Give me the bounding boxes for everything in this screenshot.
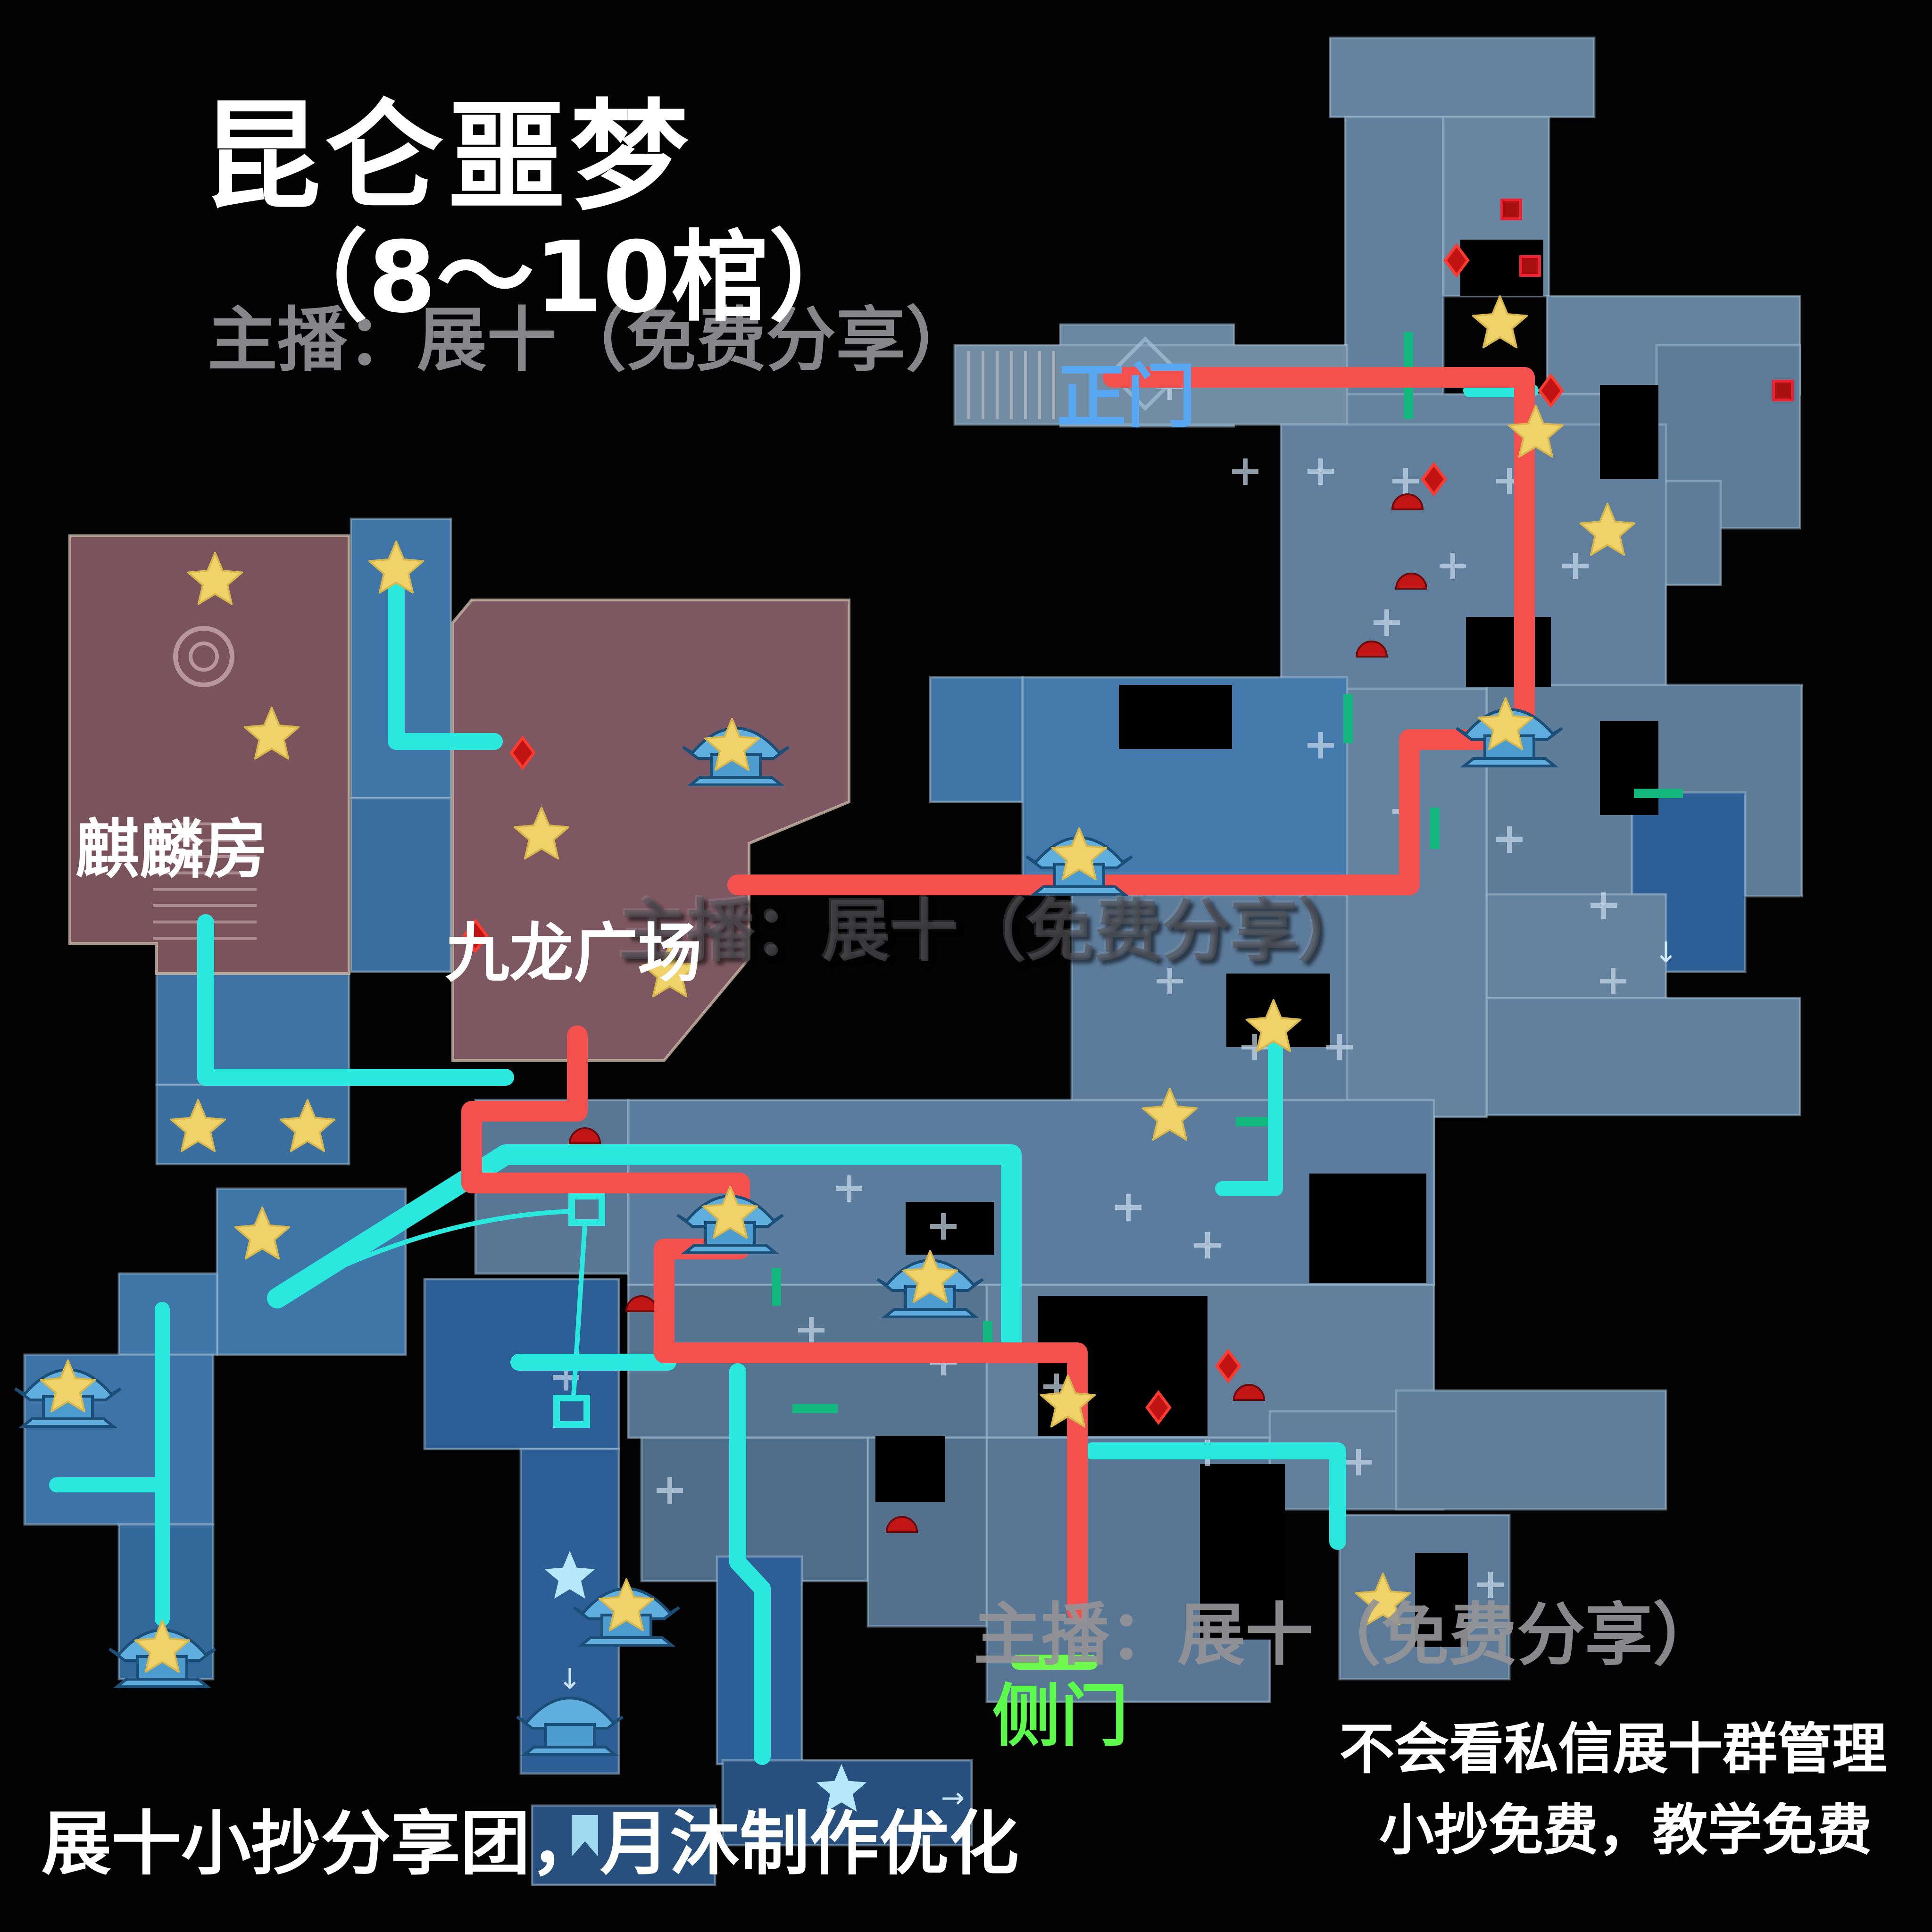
red-square-marker: [1502, 200, 1521, 219]
room: [1396, 1391, 1666, 1509]
pagoda-base: [685, 1245, 775, 1253]
unexplored-hole: [1309, 1174, 1426, 1283]
room: [1487, 998, 1800, 1115]
footer-notice-2: 小抄免费，教学免费: [1379, 1804, 1872, 1858]
unexplored-hole: [1466, 617, 1551, 687]
unexplored-hole: [1600, 721, 1658, 815]
pagoda-body: [545, 1724, 594, 1747]
pagoda-base: [691, 777, 781, 785]
watermark-center: 主播：展十（免费分享）: [619, 900, 1366, 968]
unexplored-hole: [875, 1436, 945, 1502]
room: [1330, 38, 1594, 117]
footer-notice-1: 不会看私信展十群管理: [1340, 1723, 1887, 1777]
map-title: 昆仑噩梦: [202, 98, 692, 217]
room: [351, 798, 451, 972]
footer-credit: 展十小抄分享团，月沐制作优化: [42, 1809, 1019, 1879]
green-door: [1343, 694, 1353, 743]
pagoda-base: [581, 1638, 672, 1645]
label-qilin-room: 麒麟房: [75, 819, 268, 883]
arrow-icon: ↓: [558, 1663, 582, 1696]
watermark-bottom: 主播：展十（免费分享）: [974, 1604, 1721, 1672]
pagoda-base: [525, 1747, 615, 1755]
pagoda-base: [1464, 758, 1555, 766]
arrow-icon: ↓: [1654, 936, 1678, 969]
map-stage: ↓↓→ 主播：展十（免费分享） 主播：展十（免费分享） 主播：展十（免费分享） …: [0, 0, 1932, 1932]
green-door: [1634, 789, 1683, 798]
room: [930, 677, 1023, 802]
room: [1487, 894, 1666, 998]
pagoda-base: [885, 1309, 975, 1317]
label-side-gate: 侧门: [992, 1685, 1128, 1753]
label-nine-dragon-plaza: 九龙广场: [445, 923, 702, 987]
pagoda-base: [1034, 887, 1124, 894]
qilin-room: [70, 536, 349, 974]
red-square-marker: [1774, 381, 1792, 400]
unexplored-hole: [1600, 385, 1658, 479]
pagoda-base: [117, 1679, 208, 1687]
green-door: [1430, 808, 1440, 849]
green-door: [792, 1404, 838, 1413]
label-main-gate: 正门: [1057, 362, 1196, 432]
room: [1345, 117, 1443, 396]
unexplored-hole: [1119, 685, 1232, 749]
map-subtitle: （8～10棺）: [270, 230, 867, 328]
pagoda-base: [23, 1419, 113, 1426]
yellow-star-icon: [1473, 296, 1527, 347]
room: [157, 972, 349, 1085]
wall-cross: [1232, 458, 1258, 485]
red-square-marker: [1521, 257, 1540, 275]
green-door: [772, 1268, 781, 1306]
